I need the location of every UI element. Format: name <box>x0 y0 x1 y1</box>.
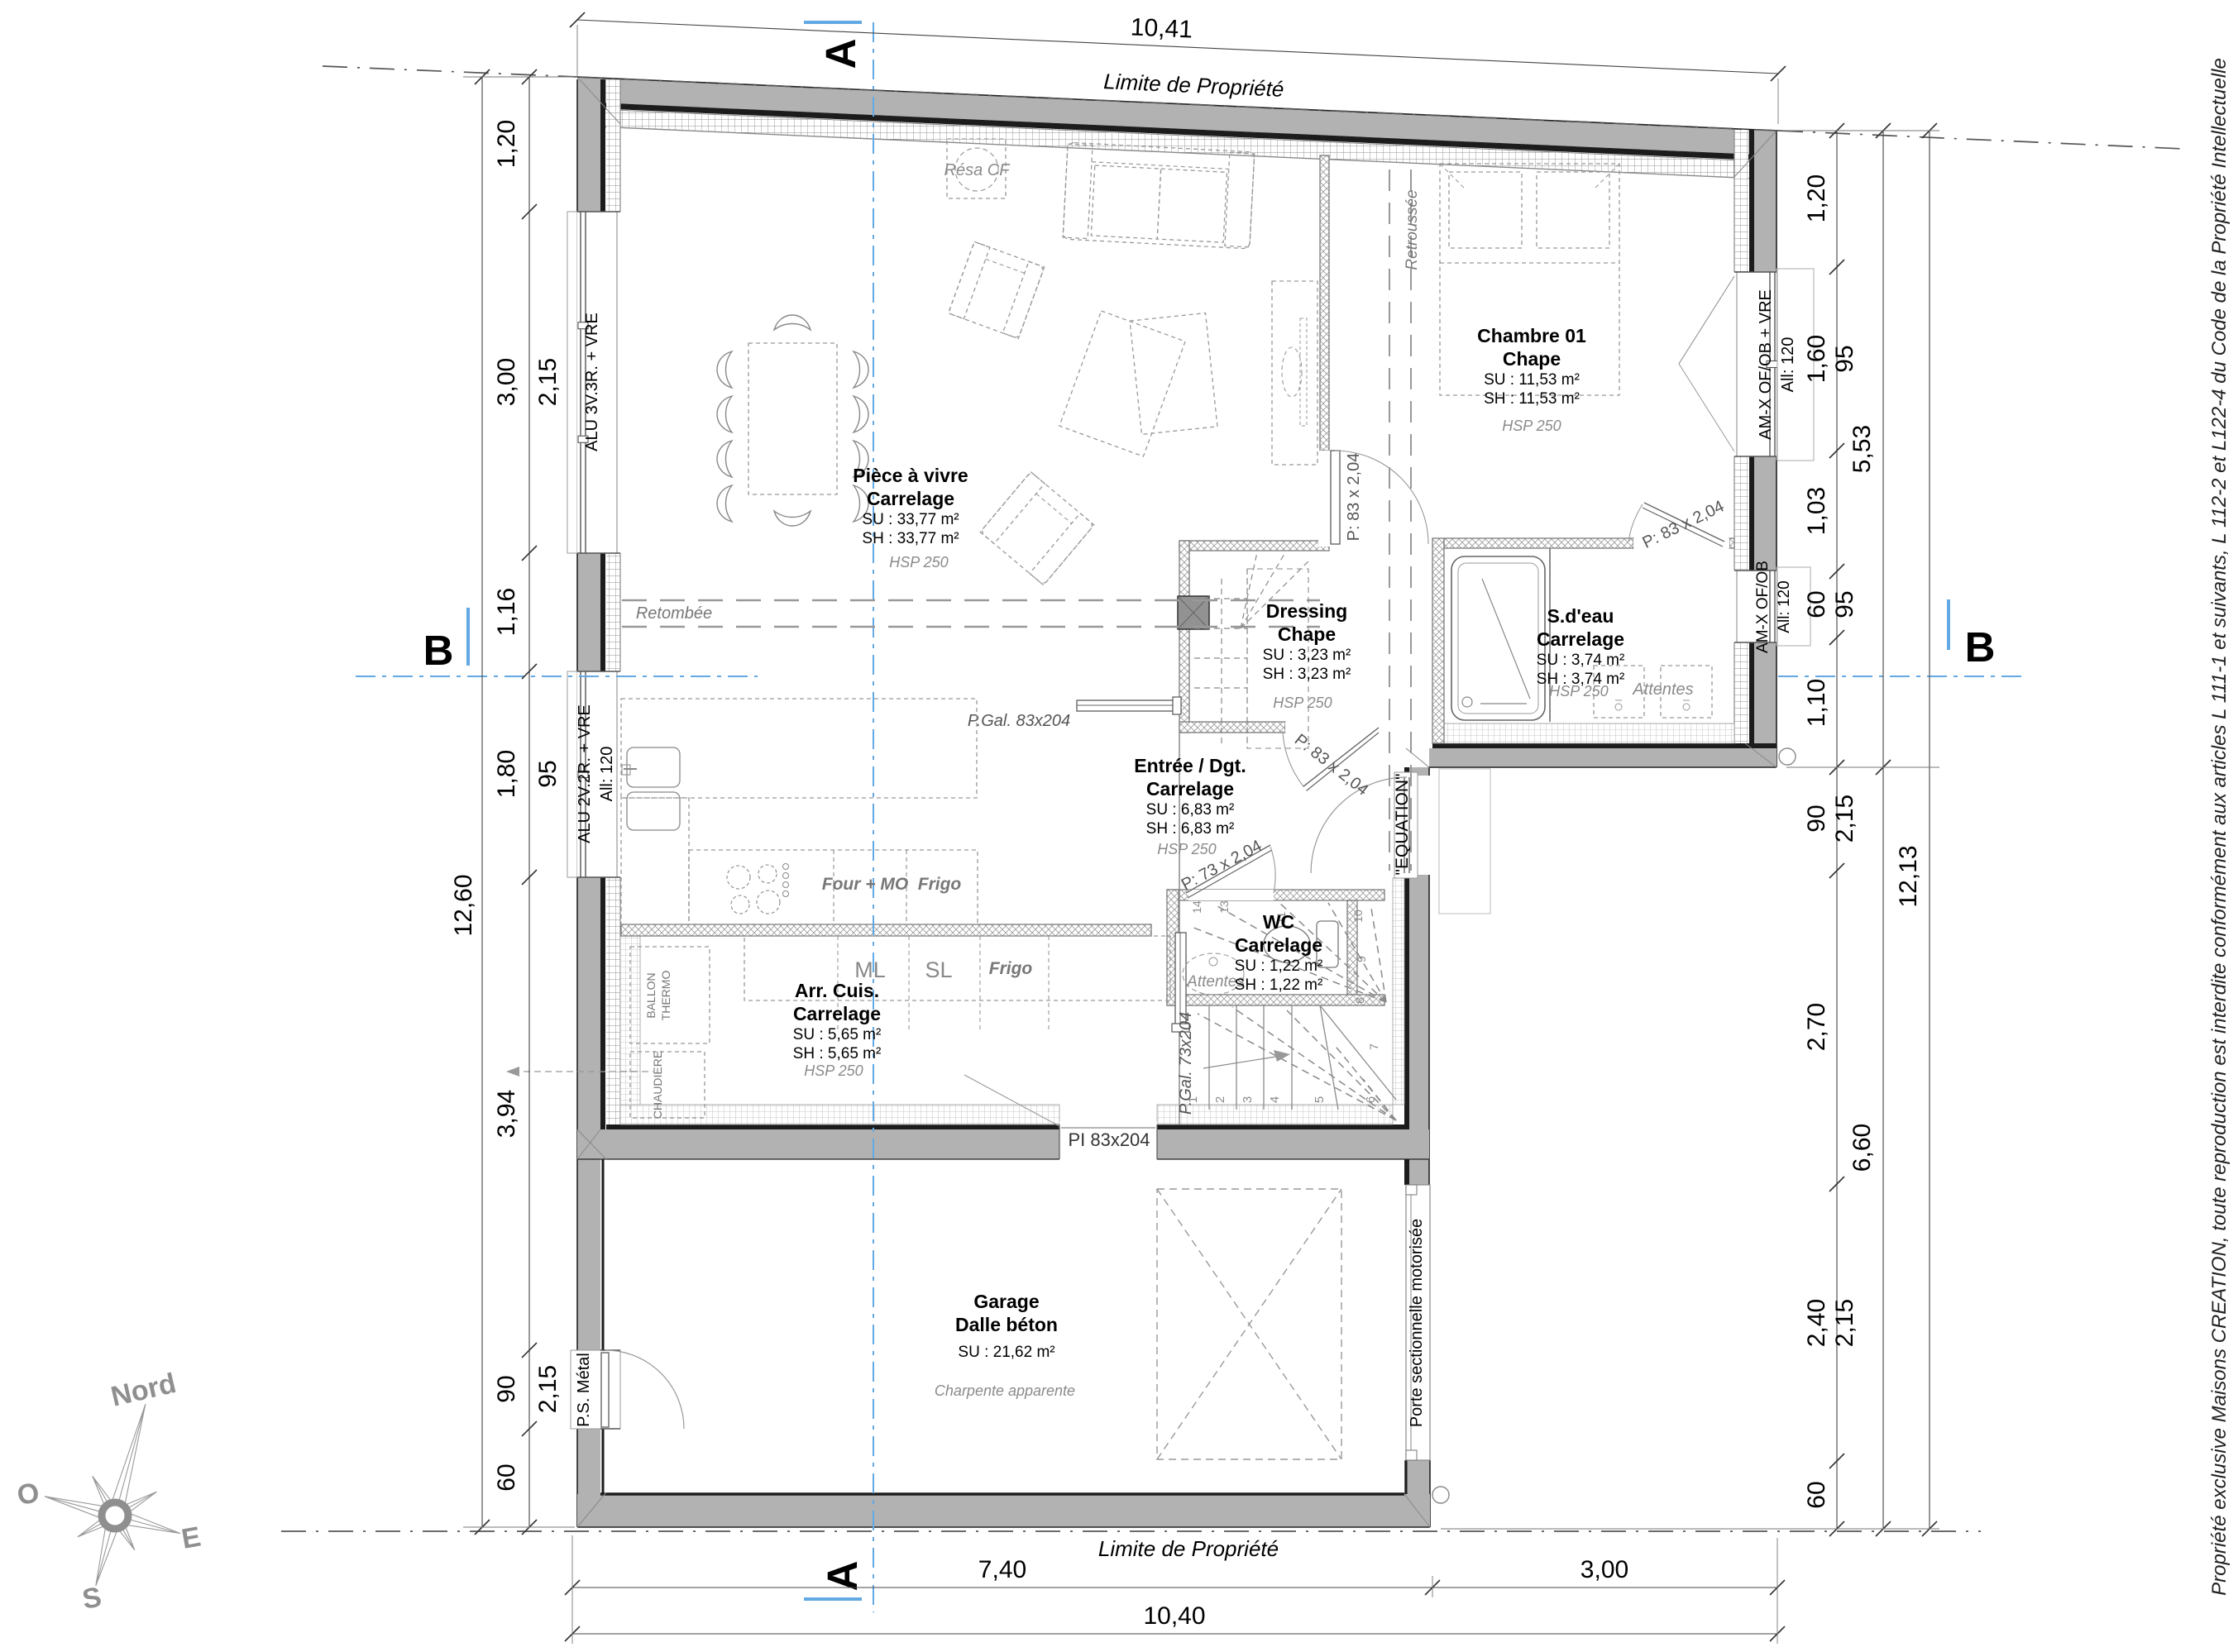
svg-text:SH : 6,83 m²: SH : 6,83 m² <box>1146 820 1235 838</box>
svg-text:6,60: 6,60 <box>1848 1124 1876 1172</box>
svg-text:SU : 33,77 m²: SU : 33,77 m² <box>862 511 959 528</box>
svg-text:2: 2 <box>1213 1096 1227 1103</box>
svg-text:"EQUATION": "EQUATION" <box>1393 773 1412 875</box>
svg-text:1,60: 1,60 <box>1803 335 1830 383</box>
svg-text:Attentes: Attentes <box>1632 680 1693 699</box>
svg-text:Carrelage: Carrelage <box>1537 628 1624 650</box>
svg-text:SU : 3,23 m²: SU : 3,23 m² <box>1263 647 1351 664</box>
svg-text:B: B <box>1965 623 1996 671</box>
svg-text:2,15: 2,15 <box>534 358 562 406</box>
svg-text:60: 60 <box>493 1463 520 1491</box>
svg-text:THERMO: THERMO <box>659 971 672 1021</box>
svg-text:6: 6 <box>1364 1096 1378 1103</box>
svg-text:Propriété exclusive Maisons CR: Propriété exclusive Maisons CREATION, to… <box>2208 58 2231 1596</box>
svg-text:P: 83 x 2,04: P: 83 x 2,04 <box>1345 453 1363 542</box>
svg-text:Dalle béton: Dalle béton <box>955 1314 1058 1335</box>
svg-text:5: 5 <box>1313 1096 1327 1103</box>
svg-text:SH : 33,77 m²: SH : 33,77 m² <box>862 530 959 547</box>
svg-text:ALU 2V.2R. + VRE: ALU 2V.2R. + VRE <box>576 704 594 843</box>
svg-text:10,40: 10,40 <box>1143 1602 1205 1630</box>
svg-text:13: 13 <box>1217 900 1231 914</box>
svg-text:Chambre 01: Chambre 01 <box>1477 325 1586 346</box>
svg-text:3,00: 3,00 <box>1580 1556 1628 1583</box>
svg-text:Carrelage: Carrelage <box>867 488 954 509</box>
svg-text:1,80: 1,80 <box>493 750 520 798</box>
svg-text:3,94: 3,94 <box>493 1090 520 1138</box>
svg-text:WC: WC <box>1263 911 1294 933</box>
svg-text:SU : 21,62 m²: SU : 21,62 m² <box>958 1344 1054 1361</box>
svg-text:HSP 250: HSP 250 <box>1273 695 1332 711</box>
svg-text:2,40: 2,40 <box>1803 1299 1830 1347</box>
svg-text:Entrée / Dgt.: Entrée / Dgt. <box>1134 755 1246 776</box>
svg-text:SH : 11,53 m²: SH : 11,53 m² <box>1484 390 1580 408</box>
svg-text:All: 120: All: 120 <box>598 747 616 802</box>
svg-text:1,03: 1,03 <box>1803 487 1830 535</box>
svg-text:Chape: Chape <box>1278 623 1336 645</box>
svg-text:3: 3 <box>1241 1096 1255 1103</box>
svg-text:HSP 250: HSP 250 <box>889 554 948 571</box>
svg-text:S.d'eau: S.d'eau <box>1547 605 1614 627</box>
svg-text:Charpente apparente: Charpente apparente <box>935 1382 1075 1399</box>
svg-text:All: 120: All: 120 <box>1776 580 1793 633</box>
svg-text:Chape: Chape <box>1503 348 1561 370</box>
svg-text:Frigo: Frigo <box>989 959 1033 978</box>
svg-text:Four + MO: Four + MO <box>822 875 908 894</box>
svg-text:90: 90 <box>1803 805 1830 832</box>
svg-text:12,13: 12,13 <box>1895 845 1922 907</box>
svg-text:Résa CF: Résa CF <box>944 161 1011 179</box>
svg-text:12,60: 12,60 <box>450 874 477 936</box>
svg-text:SU : 6,83 m²: SU : 6,83 m² <box>1146 801 1235 819</box>
svg-text:Porte sectionnelle motorisée: Porte sectionnelle motorisée <box>1408 1219 1426 1427</box>
svg-text:All: 120: All: 120 <box>1779 337 1797 393</box>
svg-text:ML: ML <box>854 957 886 982</box>
svg-text:Arr. Cuis.: Arr. Cuis. <box>795 980 879 1001</box>
svg-text:A: A <box>819 1561 866 1592</box>
svg-text:AM-X OF/OB + VRE: AM-X OF/OB + VRE <box>1757 289 1775 440</box>
svg-text:Dressing: Dressing <box>1266 600 1347 622</box>
svg-text:7,40: 7,40 <box>978 1556 1026 1583</box>
svg-text:95: 95 <box>1831 590 1858 618</box>
svg-text:2,15: 2,15 <box>1831 795 1858 843</box>
svg-text:SH : 5,65 m²: SH : 5,65 m² <box>793 1045 882 1062</box>
svg-text:2,15: 2,15 <box>534 1365 562 1413</box>
svg-text:Limite de Propriété: Limite de Propriété <box>1098 1536 1279 1561</box>
svg-text:Frigo: Frigo <box>918 875 962 894</box>
svg-text:Garage: Garage <box>973 1291 1039 1312</box>
svg-text:P.Gal. 83x204: P.Gal. 83x204 <box>968 712 1070 730</box>
svg-text:1,10: 1,10 <box>1803 679 1830 727</box>
svg-text:1,20: 1,20 <box>1803 174 1830 222</box>
svg-text:SU : 1,22 m²: SU : 1,22 m² <box>1235 957 1323 975</box>
svg-text:SU : 5,65 m²: SU : 5,65 m² <box>793 1026 882 1043</box>
svg-text:Retroussée: Retroussée <box>1404 189 1421 270</box>
svg-text:BALLON: BALLON <box>644 972 658 1018</box>
svg-text:10,41: 10,41 <box>1130 13 1193 43</box>
svg-text:CHAUDIERE: CHAUDIERE <box>651 1051 664 1119</box>
svg-text:AM-X OF/OB: AM-X OF/OB <box>1754 561 1772 653</box>
svg-text:2,15: 2,15 <box>1831 1299 1858 1347</box>
svg-text:14: 14 <box>1190 900 1203 914</box>
svg-text:SU : 3,74 m²: SU : 3,74 m² <box>1537 652 1625 669</box>
svg-text:60: 60 <box>1803 1481 1830 1508</box>
svg-text:Carrelage: Carrelage <box>793 1003 881 1024</box>
svg-text:PI 83x204: PI 83x204 <box>1068 1129 1150 1150</box>
svg-text:SU : 11,53 m²: SU : 11,53 m² <box>1484 371 1580 389</box>
svg-text:Pièce à vivre: Pièce à vivre <box>853 465 968 486</box>
svg-text:Retombée: Retombée <box>636 604 712 623</box>
svg-text:1,16: 1,16 <box>493 588 520 636</box>
svg-text:90: 90 <box>493 1375 520 1402</box>
svg-text:P.S. Métal: P.S. Métal <box>575 1353 593 1427</box>
svg-text:4: 4 <box>1268 1096 1282 1103</box>
svg-text:10: 10 <box>1351 910 1365 923</box>
svg-text:HSP 250: HSP 250 <box>804 1062 863 1079</box>
svg-text:HSP 250: HSP 250 <box>1549 683 1608 699</box>
svg-text:Carrelage: Carrelage <box>1146 778 1234 800</box>
svg-text:Carrelage: Carrelage <box>1235 934 1322 956</box>
svg-text:B: B <box>423 627 454 674</box>
svg-text:7: 7 <box>1367 1043 1380 1050</box>
svg-text:1,20: 1,20 <box>493 120 520 168</box>
svg-text:1: 1 <box>1186 1096 1200 1103</box>
svg-text:ALU 3V.3R. + VRE: ALU 3V.3R. + VRE <box>583 313 601 451</box>
svg-text:HSP 250: HSP 250 <box>1157 841 1216 857</box>
svg-text:SL: SL <box>925 957 952 982</box>
svg-text:95: 95 <box>1831 345 1858 372</box>
svg-text:SH : 3,23 m²: SH : 3,23 m² <box>1263 666 1351 683</box>
svg-text:SH : 1,22 m²: SH : 1,22 m² <box>1235 976 1323 994</box>
svg-text:9: 9 <box>1355 956 1368 962</box>
svg-text:60: 60 <box>1803 590 1830 618</box>
svg-text:95: 95 <box>534 760 562 787</box>
svg-text:HSP 250: HSP 250 <box>1502 418 1561 434</box>
svg-text:8: 8 <box>1353 997 1366 1004</box>
svg-text:2,70: 2,70 <box>1803 1003 1830 1051</box>
svg-text:A: A <box>817 39 864 69</box>
svg-text:5,53: 5,53 <box>1848 425 1876 473</box>
svg-text:3,00: 3,00 <box>493 358 520 406</box>
